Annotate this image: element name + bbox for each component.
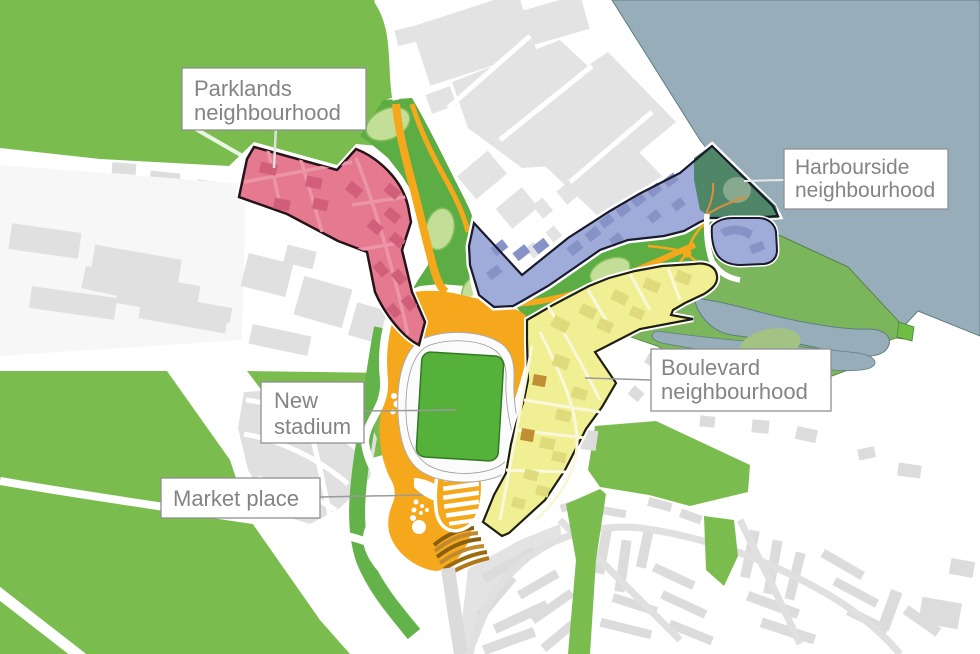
svg-text:Boulevard: Boulevard <box>661 355 760 380</box>
svg-text:Market place: Market place <box>173 486 299 511</box>
svg-text:New: New <box>274 388 318 413</box>
svg-text:Parklands: Parklands <box>194 76 292 101</box>
svg-text:Harbourside: Harbourside <box>795 156 909 179</box>
svg-text:stadium: stadium <box>274 414 351 439</box>
svg-text:neighbourhood: neighbourhood <box>194 100 341 125</box>
svg-text:neighbourhood: neighbourhood <box>795 179 935 202</box>
svg-text:neighbourhood: neighbourhood <box>661 379 808 404</box>
